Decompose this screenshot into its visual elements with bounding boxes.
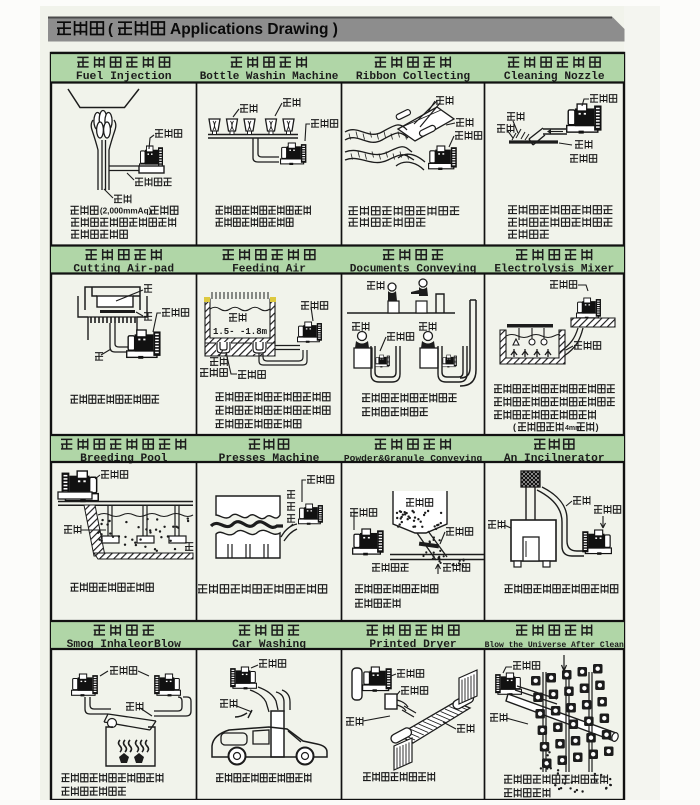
svg-text:1.5- -1.8m: 1.5- -1.8m: [213, 327, 268, 337]
svg-text:Presses Machine: Presses Machine: [219, 453, 320, 465]
svg-text:Cleaning Nozzle: Cleaning Nozzle: [504, 71, 605, 83]
svg-text:(: (: [108, 21, 113, 38]
svg-text:Fuel Injection: Fuel Injection: [76, 71, 172, 83]
svg-text:Bottle Washin Machine: Bottle Washin Machine: [200, 71, 339, 83]
svg-text:Ribbon Collecting: Ribbon Collecting: [356, 71, 470, 83]
svg-text:Applications Drawing ): Applications Drawing ): [170, 21, 338, 38]
svg-text:(2,000mmAq): (2,000mmAq): [100, 207, 152, 216]
svg-text:An Incilnerator: An Incilnerator: [504, 453, 605, 465]
svg-text:Breeding Pool: Breeding Pool: [80, 453, 168, 465]
svg-text:(: (: [513, 422, 516, 432]
svg-text:): ): [596, 422, 599, 432]
